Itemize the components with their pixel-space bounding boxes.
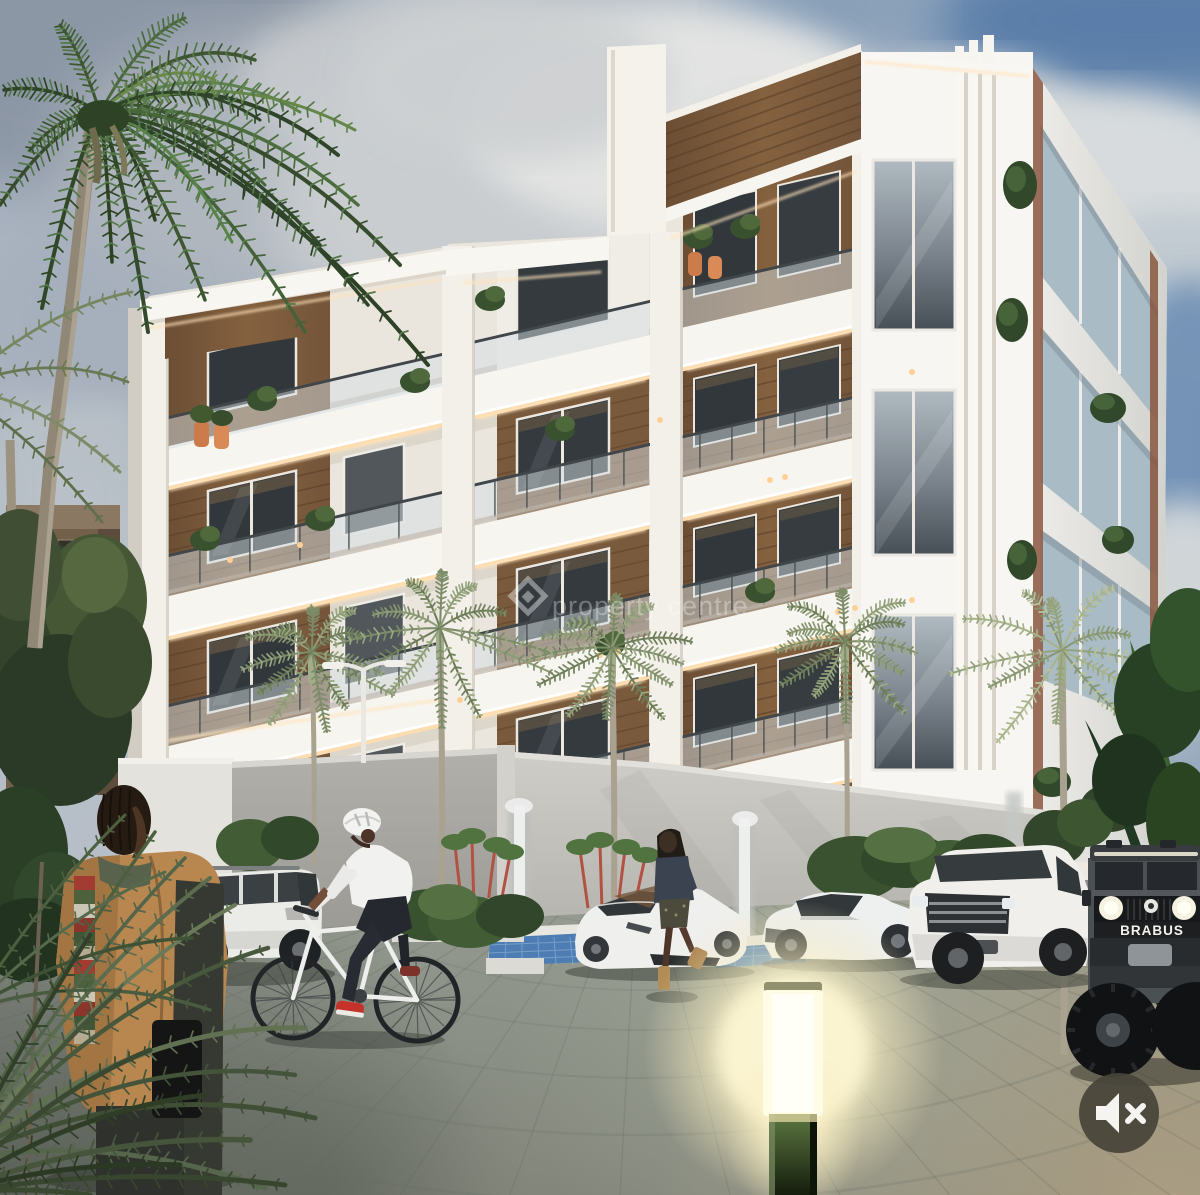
svg-text:property centre: property centre bbox=[552, 591, 749, 621]
svg-text:BRABUS: BRABUS bbox=[1120, 923, 1184, 938]
